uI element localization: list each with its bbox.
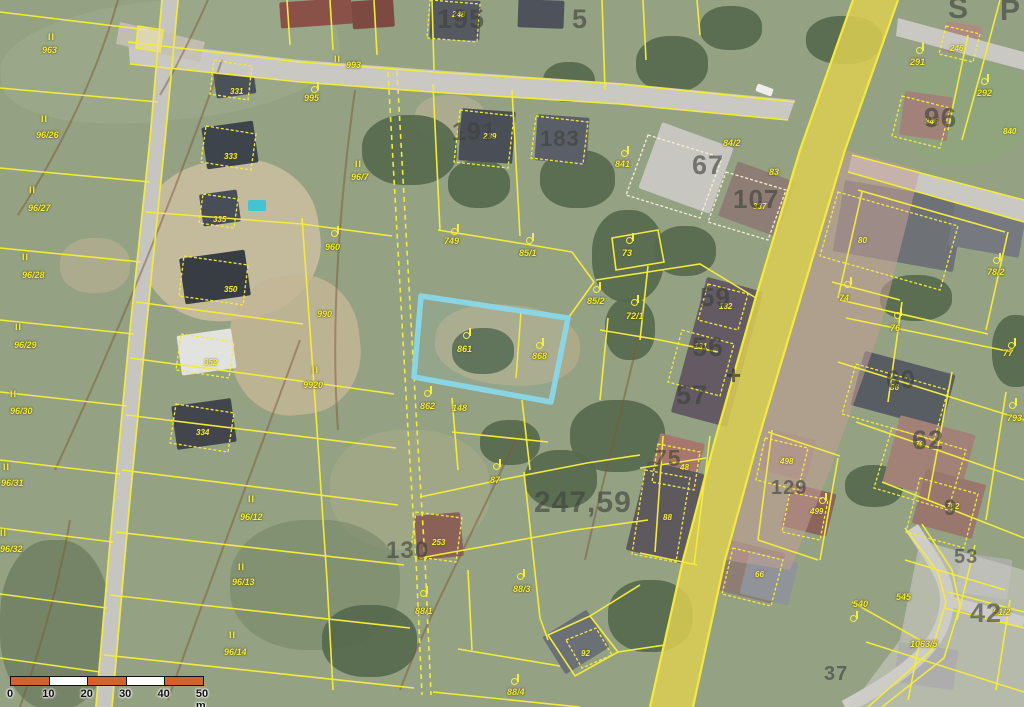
- scale-bar-segment: [11, 677, 50, 685]
- map-overlay-layer: [0, 0, 1024, 707]
- scale-bar-segment: [165, 677, 203, 685]
- scale-bar-tick-label: 0: [7, 688, 13, 700]
- scale-bar-tick-label: 50 m: [196, 688, 208, 707]
- scale-bar-tick-label: 20: [81, 688, 93, 700]
- scale-bar: 01020304050 m: [10, 676, 204, 700]
- scale-bar-segment: [88, 677, 127, 685]
- scale-bar-segment: [127, 677, 166, 685]
- map-viewport[interactable]: 96396/2696/2796/2896/2996/3096/3196/3296…: [0, 0, 1024, 707]
- scale-bar-segments: [10, 676, 204, 686]
- scale-bar-segment: [50, 677, 89, 685]
- selected-parcel-highlight[interactable]: [414, 296, 568, 402]
- scale-bar-ticks: 01020304050 m: [10, 688, 204, 700]
- scale-bar-tick-label: 10: [42, 688, 54, 700]
- scale-bar-tick-label: 40: [157, 688, 169, 700]
- scale-bar-tick-label: 30: [119, 688, 131, 700]
